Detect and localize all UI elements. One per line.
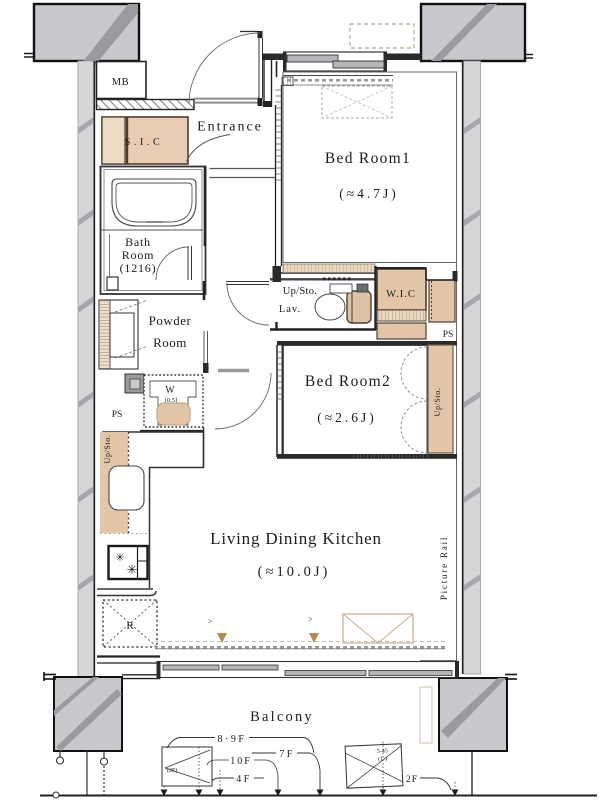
svg-text:Up/Sto.: Up/Sto. [103,435,112,464]
svg-text:R: R [126,620,134,632]
svg-text:Up/Sto.: Up/Sto. [433,388,442,417]
svg-text:Bath: Bath [125,235,151,249]
svg-text:MB: MB [112,77,130,88]
svg-text:7F: 7F [279,749,295,760]
svg-text:Bed Room2: Bed Room2 [305,373,391,390]
svg-text:>: > [208,617,213,626]
svg-text:Room: Room [122,248,155,262]
svg-text:Bed Room1: Bed Room1 [325,150,411,167]
svg-text:PS: PS [112,410,123,420]
svg-text:5-45: 5-45 [377,748,388,754]
svg-text:Up/Sto.: Up/Sto. [283,286,317,297]
svg-text:W: W [165,385,175,396]
svg-text:PS: PS [443,330,454,340]
svg-text:Powder: Powder [149,313,192,328]
svg-text:(2F): (2F) [167,767,177,774]
svg-text:S.I.C: S.I.C [125,137,164,148]
svg-text:Living Dining Kitchen: Living Dining Kitchen [210,529,382,548]
svg-text:Lav.: Lav. [279,304,301,315]
svg-text:✳: ✳ [127,562,138,577]
svg-text:>: > [308,615,313,624]
svg-text:W.I.C: W.I.C [386,289,416,300]
svg-text:10F: 10F [230,756,252,767]
svg-text:(≈4.7J): (≈4.7J) [339,186,399,201]
svg-text:Room: Room [153,335,187,350]
svg-text:(≈10.0J): (≈10.0J) [258,564,331,580]
svg-text:8·9F: 8·9F [218,734,247,745]
svg-text:Balcony: Balcony [250,709,314,725]
svg-text:(≈2.6J): (≈2.6J) [317,410,377,425]
svg-text:4F: 4F [236,774,252,785]
svg-text:2F: 2F [406,775,418,785]
svg-text:(1216): (1216) [120,261,157,275]
svg-text:✳: ✳ [115,552,124,564]
svg-text:Picture Rail: Picture Rail [439,536,449,600]
svg-text:Entrance: Entrance [197,120,263,135]
